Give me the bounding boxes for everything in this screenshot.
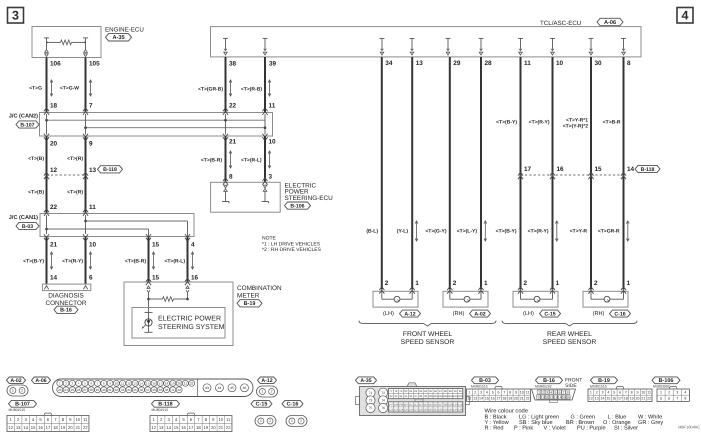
svg-text:37: 37: [146, 388, 150, 392]
svg-text:16: 16: [557, 166, 565, 173]
svg-text:22: 22: [526, 397, 530, 401]
svg-text:8: 8: [684, 397, 686, 401]
svg-text:30: 30: [102, 388, 106, 392]
svg-text:A-35: A-35: [360, 378, 371, 384]
svg-text:24: 24: [64, 388, 68, 392]
svg-text:TCL/ASC-ECU: TCL/ASC-ECU: [540, 20, 581, 27]
svg-text:A-12: A-12: [404, 312, 415, 318]
svg-text:DIAGNOSIS: DIAGNOSIS: [48, 293, 84, 300]
svg-text:6: 6: [559, 391, 561, 395]
svg-text:(LH): (LH): [523, 310, 534, 317]
svg-text:13: 13: [595, 397, 599, 401]
svg-text:7: 7: [563, 391, 565, 395]
svg-text:<T>(L-Y): <T>(L-Y): [457, 229, 478, 235]
svg-text:3: 3: [546, 391, 548, 395]
svg-text:19: 19: [508, 397, 512, 401]
svg-text:9: 9: [89, 141, 93, 148]
svg-text:18: 18: [196, 425, 201, 430]
svg-text:74: 74: [381, 399, 385, 403]
svg-text:MU803902: MU803902: [653, 384, 670, 388]
svg-text:1: 1: [556, 280, 560, 287]
svg-text:<T>(B-R): <T>(B-R): [125, 259, 146, 265]
svg-text:A-06: A-06: [35, 378, 46, 384]
svg-text:15: 15: [485, 397, 489, 401]
svg-text:7: 7: [676, 397, 678, 401]
svg-text:26: 26: [77, 388, 81, 392]
svg-text:2: 2: [668, 390, 670, 394]
svg-text:21: 21: [218, 425, 223, 430]
svg-text:A-35: A-35: [112, 35, 124, 41]
svg-text:18: 18: [502, 397, 506, 401]
svg-text:36: 36: [140, 388, 144, 392]
svg-text:25: 25: [71, 388, 75, 392]
svg-text:15: 15: [606, 397, 610, 401]
svg-text:9: 9: [636, 390, 638, 394]
svg-text:1: 1: [291, 419, 293, 423]
svg-text:A-06: A-06: [604, 20, 616, 26]
svg-text:<T>(R-L): <T>(R-L): [164, 259, 185, 265]
svg-text:B-16: B-16: [60, 308, 72, 314]
svg-text:12: 12: [589, 397, 593, 401]
svg-text:3: 3: [480, 390, 482, 394]
svg-text:20: 20: [68, 425, 73, 430]
svg-text:<T>B-R: <T>B-R: [603, 120, 621, 126]
svg-text:<T>(R): <T>(R): [67, 156, 83, 162]
svg-text:11: 11: [647, 390, 651, 394]
svg-text:MU801515: MU801515: [590, 384, 607, 388]
svg-text:15: 15: [146, 381, 150, 385]
svg-text:B-19: B-19: [598, 378, 610, 384]
svg-text:45: 45: [230, 386, 234, 390]
svg-text:71: 71: [369, 391, 373, 395]
svg-text:22: 22: [83, 425, 88, 430]
svg-text:16: 16: [191, 275, 199, 282]
svg-text:1: 1: [260, 419, 262, 423]
svg-text:ELECTRIC POWER: ELECTRIC POWER: [158, 316, 221, 323]
svg-text:8: 8: [229, 174, 233, 181]
svg-text:B-03: B-03: [22, 224, 33, 230]
svg-text:B-118: B-118: [158, 402, 172, 408]
svg-text:14: 14: [23, 425, 28, 430]
svg-text:7: 7: [89, 103, 93, 110]
svg-text:4: 4: [684, 390, 686, 394]
svg-text:41: 41: [171, 388, 175, 392]
svg-text:<T>(B-Y): <T>(B-Y): [496, 120, 517, 126]
svg-text:105: 105: [89, 61, 100, 68]
svg-text:12: 12: [8, 425, 13, 430]
svg-text:10: 10: [89, 242, 97, 249]
svg-text:10: 10: [269, 139, 277, 146]
svg-text:2: 2: [596, 390, 598, 394]
svg-text:13: 13: [89, 167, 97, 174]
svg-text:72: 72: [381, 391, 385, 395]
svg-text:7: 7: [625, 390, 627, 394]
svg-text:9: 9: [538, 396, 540, 400]
svg-text:<T>G-W: <T>G-W: [60, 86, 79, 92]
svg-text:15: 15: [595, 166, 603, 173]
svg-text:12: 12: [151, 425, 156, 430]
svg-text:75: 75: [369, 406, 373, 410]
svg-text:11: 11: [545, 396, 549, 400]
svg-text:MU805292: MU805292: [535, 384, 552, 388]
svg-text:29: 29: [453, 60, 461, 67]
svg-text:1: 1: [590, 390, 592, 394]
svg-text:20: 20: [635, 397, 639, 401]
svg-text:30: 30: [595, 60, 603, 67]
svg-text:10: 10: [556, 60, 564, 67]
svg-text:11: 11: [269, 103, 276, 110]
svg-text:1: 1: [468, 390, 470, 394]
svg-text:<T>(B): <T>(B): [28, 156, 44, 162]
svg-text:<T>(R-L): <T>(R-L): [241, 158, 262, 164]
svg-text:14: 14: [479, 397, 483, 401]
svg-text:<T>(Y-R)*2: <T>(Y-R)*2: [563, 124, 589, 130]
svg-text:<T>G: <T>G: [29, 86, 42, 92]
svg-text:A-02: A-02: [474, 312, 485, 318]
svg-text:11: 11: [89, 204, 96, 211]
svg-text:MU801515: MU801515: [9, 408, 26, 412]
svg-text:28: 28: [485, 60, 493, 67]
svg-text:2: 2: [300, 419, 302, 423]
svg-text:<T>Y-R: <T>Y-R: [570, 229, 588, 235]
svg-text:1: 1: [12, 389, 14, 393]
svg-text:17: 17: [189, 425, 194, 430]
svg-text:STEERING-ECU: STEERING-ECU: [285, 195, 334, 202]
svg-text:16: 16: [612, 397, 616, 401]
svg-text:16: 16: [181, 425, 186, 430]
svg-text:15: 15: [174, 425, 179, 430]
svg-text:MU801515: MU801515: [471, 384, 488, 388]
svg-text:<T>(B-Y): <T>(B-Y): [23, 259, 44, 265]
svg-text:7: 7: [503, 390, 505, 394]
svg-text:A-12: A-12: [261, 378, 272, 384]
svg-text:8: 8: [509, 390, 511, 394]
svg-text:B-107: B-107: [20, 122, 34, 128]
svg-text:4: 4: [486, 390, 488, 394]
svg-text:10: 10: [520, 390, 524, 394]
svg-text:(LH): (LH): [383, 310, 394, 317]
svg-text:19: 19: [204, 425, 209, 430]
svg-text:J/C (CAN1): J/C (CAN1): [9, 214, 38, 221]
svg-text:2: 2: [21, 389, 23, 393]
svg-text:1: 1: [538, 391, 540, 395]
svg-text:<T>(B-R): <T>(B-R): [201, 158, 222, 164]
svg-text:C-16: C-16: [287, 402, 299, 408]
svg-text:15: 15: [31, 425, 36, 430]
svg-text:3: 3: [676, 390, 678, 394]
svg-text:<T>(R-Y): <T>(R-Y): [529, 120, 550, 126]
svg-text:C-16: C-16: [614, 312, 625, 318]
svg-text:29: 29: [96, 388, 100, 392]
svg-text:3: 3: [269, 174, 273, 181]
svg-text:8: 8: [567, 391, 569, 395]
svg-text:17: 17: [159, 381, 163, 385]
svg-text:8: 8: [627, 60, 631, 67]
svg-text:31: 31: [108, 388, 112, 392]
svg-text:20: 20: [514, 397, 518, 401]
svg-text:11: 11: [524, 60, 531, 67]
svg-text:<T>(GR-B): <T>(GR-B): [198, 87, 223, 93]
svg-text:13: 13: [473, 397, 477, 401]
svg-text:106: 106: [50, 61, 61, 68]
svg-text:23: 23: [58, 388, 62, 392]
svg-text:22: 22: [229, 103, 237, 110]
svg-text:SI : Silver: SI : Silver: [614, 424, 638, 431]
svg-text:46: 46: [243, 386, 247, 390]
svg-text:10: 10: [75, 417, 80, 422]
svg-text:12: 12: [467, 397, 471, 401]
svg-text:B-16: B-16: [543, 378, 555, 384]
svg-text:10: 10: [115, 381, 119, 385]
svg-text:SIDE: SIDE: [565, 383, 577, 389]
svg-text:16: 16: [38, 425, 43, 430]
svg-text:16: 16: [491, 397, 495, 401]
svg-text:19: 19: [171, 381, 175, 385]
svg-text:2: 2: [453, 280, 457, 287]
svg-text:(B-L): (B-L): [366, 229, 378, 235]
svg-text:STEERING SYSTEM: STEERING SYSTEM: [158, 324, 225, 331]
svg-text:21: 21: [641, 397, 645, 401]
svg-text:P : Pink: P : Pink: [514, 424, 533, 431]
svg-text:<T>(R-Y): <T>(R-Y): [528, 229, 549, 235]
svg-text:*2 : RH DRIVE VEHICLES: *2 : RH DRIVE VEHICLES: [262, 247, 322, 253]
svg-text:B-107: B-107: [15, 402, 30, 408]
svg-text:C-15: C-15: [256, 402, 268, 408]
svg-text:J/C (CAN2): J/C (CAN2): [9, 113, 38, 120]
svg-text:32: 32: [115, 388, 119, 392]
svg-text:1: 1: [627, 280, 631, 287]
svg-text:19: 19: [630, 397, 634, 401]
svg-text:4: 4: [191, 242, 195, 249]
svg-text:3: 3: [12, 9, 19, 23]
svg-text:106: 106: [458, 395, 463, 398]
svg-text:1: 1: [261, 390, 263, 394]
svg-text:(RH): (RH): [453, 310, 465, 317]
svg-text:14: 14: [601, 397, 605, 401]
svg-text:(Y-L): (Y-L): [397, 229, 408, 235]
svg-text:B-118: B-118: [103, 167, 117, 173]
svg-text:12: 12: [127, 381, 131, 385]
svg-text:2: 2: [594, 280, 598, 287]
svg-text:20: 20: [50, 141, 58, 148]
svg-text:V : Violet: V : Violet: [544, 424, 567, 431]
svg-text:21: 21: [184, 381, 188, 385]
svg-text:5: 5: [660, 397, 662, 401]
svg-text:22: 22: [647, 397, 651, 401]
svg-text:<T>(B): <T>(B): [28, 190, 44, 196]
svg-text:MU801515: MU801515: [152, 408, 169, 412]
svg-text:PU : Purple: PU : Purple: [577, 424, 606, 431]
svg-text:13: 13: [159, 425, 164, 430]
svg-text:2: 2: [385, 280, 389, 287]
svg-text:2: 2: [542, 391, 544, 395]
svg-text:6: 6: [668, 397, 670, 401]
svg-text:20: 20: [211, 425, 216, 430]
svg-text:C-15: C-15: [544, 312, 555, 318]
svg-text:<T>(R-Y): <T>(R-Y): [62, 259, 83, 265]
svg-text:(RH): (RH): [593, 310, 605, 317]
svg-text:6: 6: [89, 275, 93, 282]
svg-text:111: 111: [409, 403, 413, 406]
svg-text:39: 39: [159, 388, 163, 392]
svg-text:5: 5: [554, 391, 556, 395]
svg-text:33: 33: [121, 388, 125, 392]
svg-text:34: 34: [127, 388, 131, 392]
svg-text:136: 136: [458, 408, 463, 411]
svg-text:10: 10: [218, 417, 223, 422]
svg-text:18: 18: [50, 103, 58, 110]
svg-text:21: 21: [520, 397, 524, 401]
svg-text:22: 22: [50, 204, 58, 211]
svg-text:40: 40: [165, 388, 169, 392]
svg-text:8: 8: [631, 390, 633, 394]
svg-text:13: 13: [133, 381, 137, 385]
svg-text:17: 17: [46, 425, 51, 430]
svg-text:14: 14: [50, 275, 58, 282]
svg-text:11: 11: [226, 417, 231, 422]
svg-text:14: 14: [166, 425, 171, 430]
svg-text:1: 1: [415, 280, 419, 287]
svg-text:13: 13: [16, 425, 21, 430]
svg-text:18: 18: [53, 425, 58, 430]
svg-text:13: 13: [416, 60, 424, 67]
svg-text:A-02: A-02: [10, 378, 21, 384]
svg-text:21: 21: [50, 242, 58, 249]
svg-text:16: 16: [152, 381, 156, 385]
svg-text:REAR WHEEL: REAR WHEEL: [547, 331, 592, 338]
svg-text:2: 2: [524, 280, 528, 287]
svg-text:METER: METER: [237, 292, 260, 299]
svg-text:44: 44: [218, 386, 222, 390]
svg-text:4: 4: [550, 391, 552, 395]
svg-text:15: 15: [152, 242, 160, 249]
svg-text:34: 34: [385, 60, 393, 67]
svg-text:6: 6: [619, 390, 621, 394]
svg-text:73: 73: [369, 399, 373, 403]
svg-text:3: 3: [602, 390, 604, 394]
svg-text:42: 42: [177, 388, 181, 392]
svg-text:4: 4: [607, 390, 609, 394]
svg-text:4: 4: [682, 9, 689, 23]
svg-text:SPEED SENSOR: SPEED SENSOR: [543, 339, 597, 346]
svg-text:COMBINATION: COMBINATION: [237, 285, 282, 292]
svg-text:11: 11: [121, 381, 124, 385]
svg-text:18: 18: [165, 381, 169, 385]
svg-text:B-106: B-106: [659, 378, 674, 384]
svg-text:5: 5: [492, 390, 494, 394]
svg-text:10: 10: [641, 390, 645, 394]
svg-text:12: 12: [50, 167, 58, 174]
svg-text:ENGINE-ECU: ENGINE-ECU: [105, 27, 144, 34]
svg-text:18: 18: [624, 397, 628, 401]
svg-text:16: 16: [566, 396, 570, 400]
svg-text:38: 38: [152, 388, 156, 392]
svg-text:22: 22: [226, 425, 231, 430]
svg-text:19: 19: [61, 425, 66, 430]
svg-text:2: 2: [271, 390, 273, 394]
svg-text:11: 11: [83, 417, 88, 422]
svg-text:<T>(B-Y): <T>(B-Y): [496, 229, 517, 235]
svg-text:35: 35: [133, 388, 137, 392]
svg-text:6: 6: [498, 390, 500, 394]
svg-text:<T>GR-R: <T>GR-R: [598, 229, 620, 235]
svg-text:121: 121: [458, 403, 463, 406]
svg-text:1: 1: [660, 390, 662, 394]
svg-text:GR : Grey: GR : Grey: [638, 420, 663, 426]
svg-text:5: 5: [613, 390, 615, 394]
svg-text:27: 27: [83, 388, 87, 392]
svg-text:43: 43: [205, 386, 209, 390]
svg-text:21: 21: [75, 425, 80, 430]
svg-text:2: 2: [474, 390, 476, 394]
svg-text:B-106: B-106: [290, 204, 304, 210]
svg-text:20: 20: [177, 381, 181, 385]
svg-text:<T>(R-B): <T>(R-B): [241, 87, 262, 93]
svg-text:FRONT WHEEL: FRONT WHEEL: [403, 331, 453, 338]
svg-text:1: 1: [484, 280, 488, 287]
svg-text:B-118: B-118: [641, 167, 655, 173]
svg-text:H8F10040C: H8F10040C: [678, 425, 700, 430]
svg-text:11: 11: [526, 390, 530, 394]
svg-text:SPEED SENSOR: SPEED SENSOR: [401, 339, 455, 346]
svg-text:<T>(G-Y): <T>(G-Y): [425, 229, 446, 235]
svg-text:110: 110: [404, 403, 409, 406]
svg-text:76: 76: [381, 406, 385, 410]
svg-text:39: 39: [269, 60, 277, 67]
svg-text:<T>(R): <T>(R): [67, 190, 83, 196]
svg-text:17: 17: [497, 397, 501, 401]
svg-text:22: 22: [190, 381, 194, 385]
svg-text:2: 2: [269, 419, 271, 423]
svg-text:17: 17: [524, 166, 532, 173]
svg-text:B-03: B-03: [479, 378, 491, 384]
svg-text:9: 9: [515, 390, 517, 394]
svg-text:14: 14: [140, 381, 144, 385]
svg-text:R : Red: R : Red: [485, 424, 504, 431]
svg-text:38: 38: [229, 60, 237, 67]
svg-text:21: 21: [229, 139, 237, 146]
svg-text:17: 17: [618, 397, 622, 401]
svg-text:14: 14: [627, 166, 635, 173]
svg-text:15: 15: [152, 275, 160, 282]
svg-text:28: 28: [90, 388, 94, 392]
svg-text:B-19: B-19: [244, 301, 256, 307]
svg-text:10: 10: [541, 396, 545, 400]
